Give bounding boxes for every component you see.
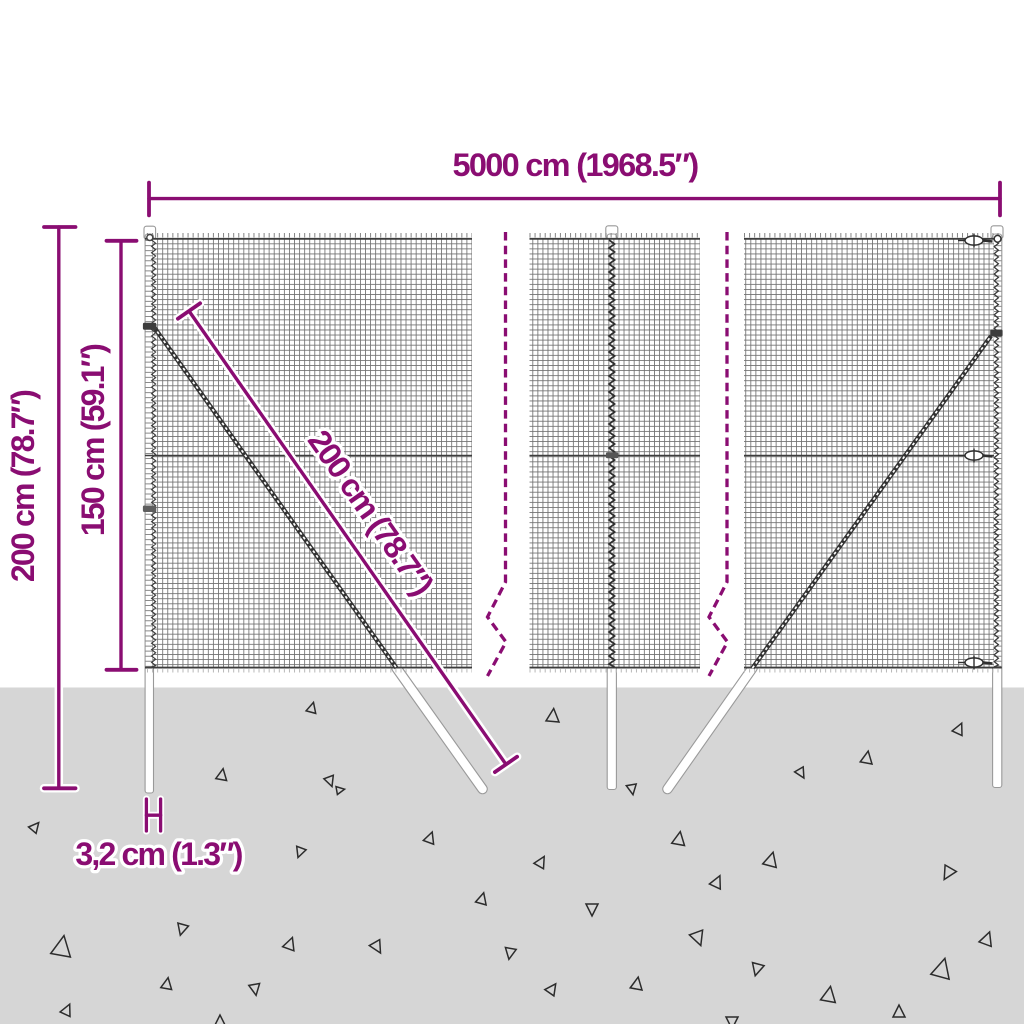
svg-text:5000 cm (1968.5″): 5000 cm (1968.5″) [452,147,698,183]
svg-text:200 cm (78.7″): 200 cm (78.7″) [5,390,41,582]
svg-text:3,2 cm (1.3″): 3,2 cm (1.3″) [75,836,242,872]
svg-text:150 cm (59.1″): 150 cm (59.1″) [75,344,111,536]
